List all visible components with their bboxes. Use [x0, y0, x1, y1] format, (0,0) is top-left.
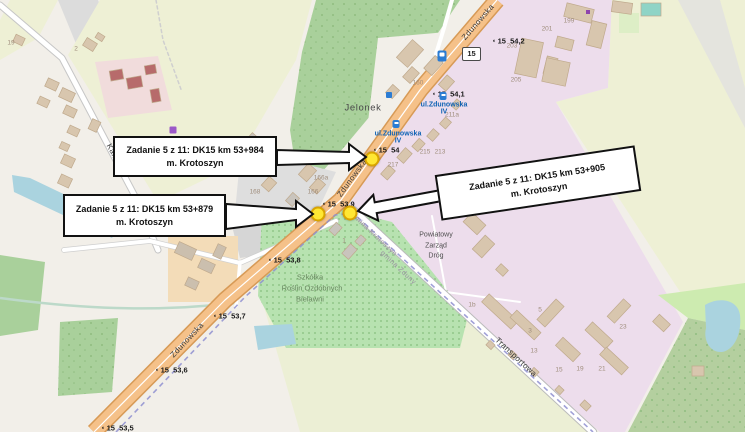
building	[109, 69, 124, 81]
callout-53-984: Zadanie 5 z 11: DK15 km 53+984 m. Krotos…	[113, 136, 277, 177]
building	[67, 125, 80, 137]
building	[144, 64, 156, 75]
building	[542, 58, 570, 86]
building	[60, 154, 75, 168]
building	[57, 174, 72, 188]
route-shield-15: 15	[462, 47, 481, 61]
building	[150, 88, 161, 102]
map-surface[interactable]: ZdunowskaZdunowskaZdunowskaKalinowaTrans…	[0, 0, 745, 432]
building	[63, 105, 78, 118]
building	[37, 96, 50, 108]
building	[641, 3, 661, 16]
building	[59, 88, 76, 103]
callout-line2: m. Krotoszyn	[115, 158, 275, 168]
building	[126, 76, 143, 89]
callout-line1: Zadanie 5 z 11: DK15 km 53+879	[65, 204, 224, 214]
building	[45, 78, 60, 91]
callout-53-879: Zadanie 5 z 11: DK15 km 53+879 m. Krotos…	[63, 194, 226, 237]
building	[59, 141, 70, 151]
callout-line1: Zadanie 5 z 11: DK15 km 53+984	[115, 145, 275, 155]
callout-line2: m. Krotoszyn	[65, 217, 224, 227]
building	[611, 1, 632, 15]
building	[692, 366, 704, 376]
